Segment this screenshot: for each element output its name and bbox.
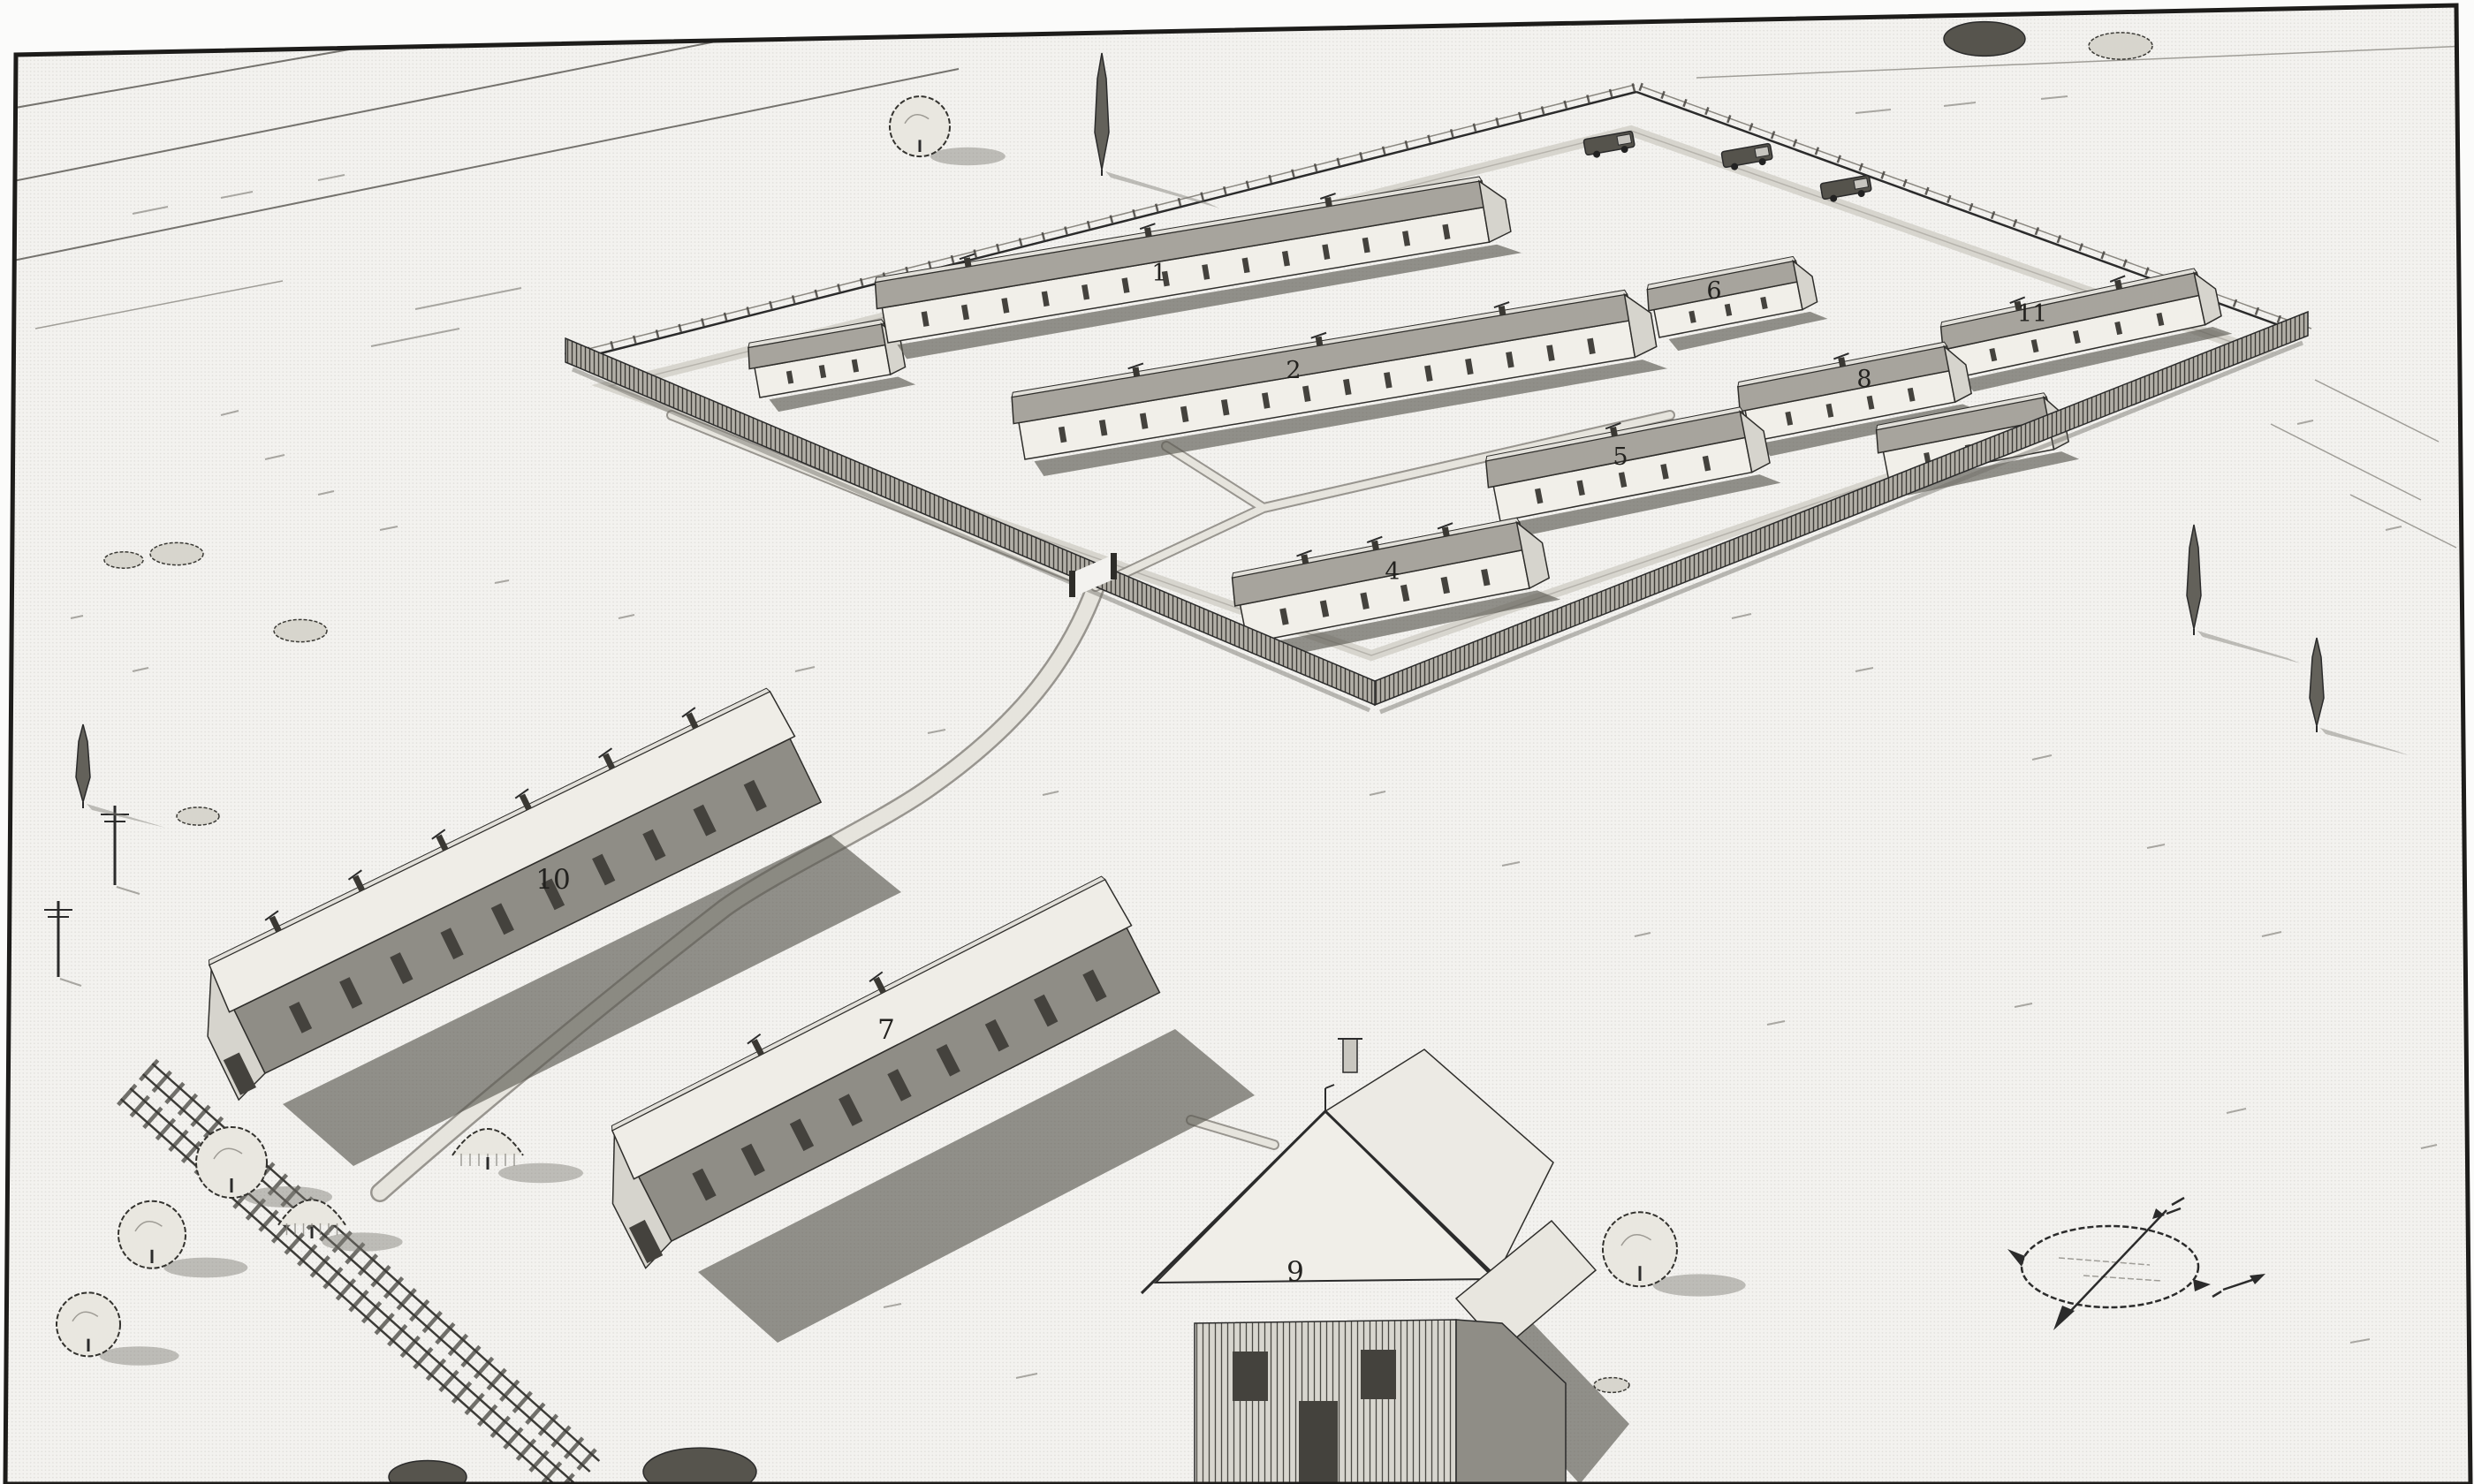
label-building-4: 4 (1385, 558, 1400, 586)
bush (104, 552, 143, 568)
gate-post-right (1111, 553, 1117, 579)
label-building-7: 7 (877, 1014, 895, 1046)
bush (177, 807, 219, 825)
label-barracks-2: 2 (1286, 357, 1301, 384)
camp-illustration: 1 2 4 5 6 7 8 9 10 11 (0, 0, 2474, 1484)
label-building-11: 11 (2017, 300, 2047, 328)
bush (274, 619, 327, 641)
house-window (1233, 1351, 1268, 1401)
chimney (1343, 1039, 1357, 1072)
gate-post-left (1069, 571, 1075, 597)
bush (1594, 1378, 1629, 1393)
label-building-5: 5 (1613, 443, 1628, 471)
label-building-6: 6 (1706, 277, 1721, 305)
bush (1944, 22, 2025, 57)
label-building-8: 8 (1856, 366, 1871, 393)
bush (2089, 33, 2152, 59)
house-door (1299, 1401, 1338, 1484)
label-house-9: 9 (1286, 1256, 1304, 1288)
label-barracks-1: 1 (1151, 260, 1166, 287)
house-window (1361, 1350, 1396, 1399)
bush (150, 542, 203, 564)
label-barracks-10: 10 (535, 864, 570, 896)
